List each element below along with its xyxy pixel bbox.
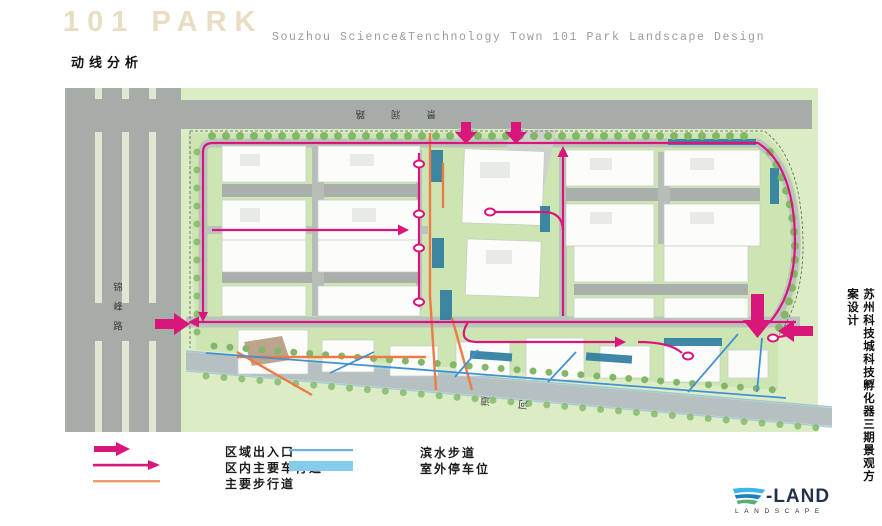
- z-land-logo-icon: [731, 486, 767, 508]
- top-road-label: 景润路: [329, 108, 436, 120]
- logo-tagline: LANDSCAPE: [731, 508, 837, 515]
- legend-row-pedestrian: 主要步行道: [92, 475, 295, 491]
- left-road-label: 锦峰路: [109, 282, 123, 341]
- legend-label: 室外停车位: [420, 460, 490, 477]
- legend-row-parking: 室外停车位: [288, 460, 490, 476]
- legend-label: 滨水步道: [420, 444, 476, 461]
- legend-label: 主要步行道: [225, 475, 295, 492]
- presentation-page: 101 PARK Souzhou Science&Tenchnology Tow…: [0, 0, 882, 526]
- firm-logo: -LAND LANDSCAPE: [731, 486, 837, 515]
- parking-bar-icon: [288, 458, 420, 479]
- logo-brand-text: -LAND: [766, 487, 830, 507]
- buildings: [222, 146, 768, 382]
- legend-label: 区域出入口: [225, 443, 295, 460]
- pedestrian-path-icon: [92, 473, 225, 494]
- side-project-title: 苏州科技城科技孵化器三期景观方案设计: [844, 288, 876, 493]
